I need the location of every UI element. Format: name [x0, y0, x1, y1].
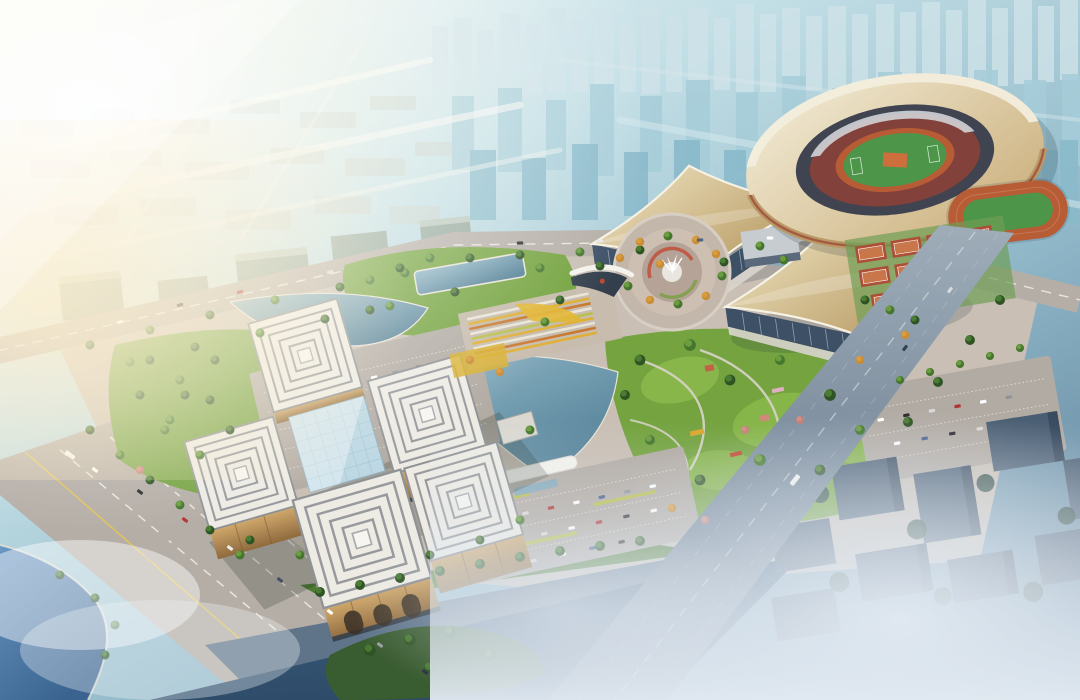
scene-canvas: Aerial dusk rendering of a civic sports …: [0, 0, 1080, 700]
aerial-rendering: Aerial dusk rendering of a civic sports …: [0, 0, 1080, 700]
center-stage: [883, 152, 908, 167]
